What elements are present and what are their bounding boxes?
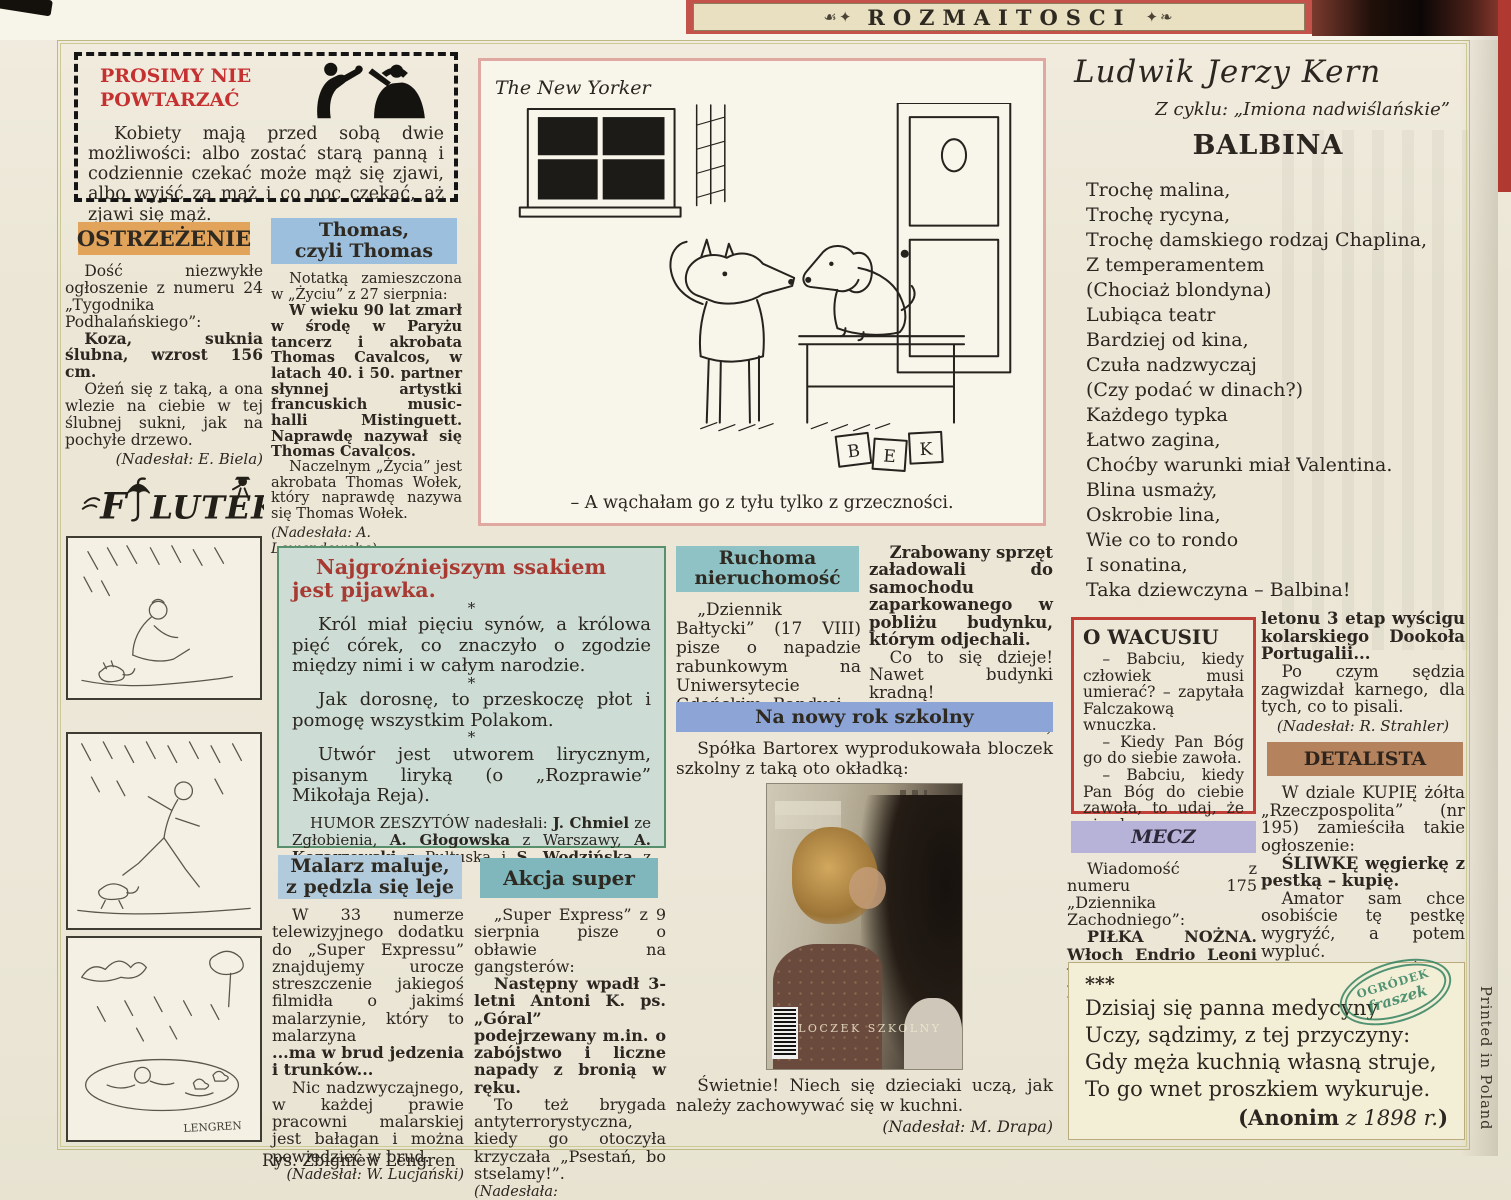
humor-quote: Utwór jest utworem lirycznym, pisanym li… (292, 745, 651, 807)
poem-title: BALBINA (1070, 130, 1466, 161)
poem-body: Trochę malina, Trochę rycyna, Trochę dam… (1086, 178, 1466, 603)
section-header-thomas: Thomas, czyli Thomas (271, 218, 457, 264)
prosimy-title-line2: POWTARZAĆ (100, 89, 251, 113)
photo-kitchen-shelf (775, 801, 841, 815)
section-header-akcja: Akcja super (480, 858, 658, 898)
header-label: Akcja super (503, 867, 635, 889)
paragraph: – Babciu, kiedy człowiek musi umierać? –… (1083, 651, 1244, 734)
paragraph: ...ma w brud jedzenia i trunków... (272, 1044, 464, 1079)
szkolny-outro: Świetnie! Niech się dzieciaki uczą, jak … (676, 1077, 1053, 1137)
header-label-line2: nieruchomość (694, 569, 840, 589)
comic-panel-1-drawing (68, 538, 260, 698)
page-banner: ☙✦ ROZMAITOSCI ✦❧ (686, 0, 1312, 34)
scan-cover-edge (1498, 0, 1511, 192)
paragraph: letonu 3 etap wyścigu kolarskiego Dookoł… (1261, 610, 1465, 663)
page-title: ROZMAITOSCI (867, 5, 1131, 30)
comic-panel-2 (66, 732, 262, 930)
ostrzezenie-article-body: Dość niezwykłe ogłoszenie z numeru 24 „T… (65, 263, 263, 468)
cartoonist-signature: B E K (836, 432, 943, 471)
paragraph: To też brygada antyterrorystyczna, kiedy… (474, 1096, 666, 1182)
separator-star: * (292, 677, 651, 691)
svg-text:LUTEK: LUTEK (150, 488, 264, 526)
paragraph: Naczelnym „Życia” jest akrobata Thomas W… (271, 460, 462, 523)
paragraph: ŚLIWKĘ węgierkę z pestką – kupię. (1261, 855, 1465, 890)
barcode (772, 1007, 798, 1059)
paragraph: Co to się dzieje! Nawet budynki kradną! (869, 649, 1053, 701)
prosimy-title-line1: PROSIMY NIE (100, 65, 251, 89)
paragraph: Po czym sędzia zagwizdał karnego, dla ty… (1261, 663, 1465, 716)
scan-spine-shadow (1312, 0, 1511, 36)
comic-panel-3-drawing: LENGREN (68, 938, 260, 1140)
header-label: Na nowy rok szkolny (755, 707, 974, 728)
new-yorker-cartoon-box: The New Yorker (478, 58, 1046, 526)
contributor-credit: (Nadesłała: K.Tomaszewska) (474, 1184, 666, 1200)
contributor-credit: (Nadesłał: R. Strahler) (1261, 718, 1465, 736)
svg-text:F: F (99, 483, 129, 527)
paragraph: – Kiedy Pan Bóg go do siebie zawoła. (1083, 734, 1244, 767)
humor-title: Najgroźniejszym ssakiem jest pijawka. (292, 556, 651, 602)
header-label-line1: Ruchoma (719, 549, 816, 569)
prosimy-title: PROSIMY NIE POWTARZAĆ (100, 65, 251, 113)
separator-star: * (292, 602, 651, 616)
owacusiu-body: – Babciu, kiedy człowiek musi umierać? –… (1083, 651, 1244, 833)
paragraph: Spółka Bartorex wyprodukowała bloczek sz… (676, 740, 1053, 779)
prosimy-body: Kobiety mają przed sobą dwie możliwości:… (88, 124, 444, 225)
section-header-szkolny: Na nowy rok szkolny (676, 702, 1053, 732)
section-header-malarz: Malarz maluje, z pędzla się leje (278, 855, 462, 899)
humor-zeszytow-box: Najgroźniejszym ssakiem jest pijawka. * … (277, 546, 666, 848)
left-dog-drawing (670, 240, 794, 431)
paragraph: Notatką zamieszczona w „Życiu” z 27 sier… (271, 272, 462, 303)
dancing-couple-silhouette-icon (271, 58, 446, 122)
section-header-detalista: DETALISTA (1267, 742, 1463, 776)
svg-text:K: K (919, 439, 934, 460)
detalista-article-body: W dziale KUPIĘ żółta „Rzeczpospolita” (n… (1261, 784, 1465, 980)
paragraph: W 33 numerze telewizyjnego dodatku do „S… (272, 906, 464, 1044)
banner-panel: ☙✦ ROZMAITOSCI ✦❧ (693, 3, 1305, 31)
paragraph: Wiadomość z numeru 175 „Dziennika Zachod… (1067, 860, 1257, 928)
svg-text:LENGREN: LENGREN (183, 1119, 242, 1135)
newspaper-page: ☙✦ ROZMAITOSCI ✦❧ PROSIMY NIE POWTARZAĆ (0, 0, 1511, 1200)
paragraph: Ożeń się z taką, a ona wlezie na ciebie … (65, 381, 263, 449)
paragraph: Amator sam chce osobiście tę pestkę wygr… (1261, 890, 1465, 961)
comic-panel-1 (66, 536, 262, 700)
flourish-icon: ✦❧ (1145, 8, 1174, 26)
paragraph: Koza, suknia ślubna, wzrost 156 cm. (65, 331, 263, 382)
school-notepad-cover-photo: BLOCZEK SZKOLNY (766, 783, 963, 1070)
paragraph: W wieku 90 lat zmarł w środę w Paryżu ta… (271, 303, 462, 460)
header-label-line1: Malarz maluje, (290, 856, 449, 877)
header-label: MECZ (1131, 827, 1196, 848)
bench-drawing (799, 336, 964, 422)
artist-credit: Rys. Zbigniew Lengren (262, 1151, 456, 1170)
filutek-logo: F LUTEK (74, 470, 264, 532)
comic-panel-2-drawing (68, 734, 260, 928)
section-header-mecz: MECZ (1071, 821, 1256, 853)
thomas-article-body: Notatką zamieszczona w „Życiu” z 27 sier… (271, 272, 462, 558)
svg-text:B: B (846, 441, 861, 462)
contributor-credit: (Nadesłał: M. Drapa) (676, 1118, 1053, 1137)
malarz-article-body: W 33 numerze telewizyjnego dodatku do „S… (272, 906, 464, 1184)
poem-series-label: Z cyklu: „Imiona nadwiślańskie” (1070, 99, 1450, 120)
section-header-ostrzezenie: OSTRZEŻENIE (78, 222, 250, 255)
anonim-credit: (Anonim z 1898 r.) (1085, 1105, 1448, 1130)
szkolny-intro: Spółka Bartorex wyprodukowała bloczek sz… (676, 740, 1053, 779)
paragraph: „Dziennik Bałtycki” (17 VIII) pisze o na… (676, 601, 861, 715)
paragraph: Świetnie! Niech się dzieciaki uczą, jak … (676, 1077, 1053, 1116)
akcja-article-body: „Super Express” z 9 sierpnia pisze o obł… (474, 906, 666, 1200)
photo-woman-face (849, 867, 886, 910)
ruchoma-article-left: „Dziennik Bałtycki” (17 VIII) pisze o na… (676, 601, 861, 715)
anonim-poem-box: *** Dzisiaj się panna medycyny Uczy, sąd… (1068, 962, 1465, 1140)
humor-quote: Jak dorosnę, to przeskoczę płot i pomogę… (292, 690, 651, 731)
prosimy-box: PROSIMY NIE POWTARZAĆ Kobiety mają przed… (74, 52, 458, 202)
flourish-icon: ☙✦ (823, 8, 853, 26)
paragraph: W dziale KUPIĘ żółta „Rzeczpospolita” (n… (1261, 784, 1465, 855)
paragraph: „Super Express” z 9 sierpnia pisze o obł… (474, 906, 666, 975)
contributor-credit: (Nadesłał: E. Biela) (65, 451, 263, 469)
header-label-line2: czyli Thomas (295, 241, 433, 262)
svg-text:E: E (883, 446, 897, 467)
cartoon-source-label: The New Yorker (495, 77, 651, 99)
peleton-article-body: letonu 3 etap wyścigu kolarskiego Dookoł… (1261, 610, 1465, 736)
comic-panel-3: LENGREN (66, 936, 262, 1142)
paragraph: Dość niezwykłe ogłoszenie z numeru 24 „T… (65, 263, 263, 331)
poem-author: Ludwik Jerzy Kern (1074, 54, 1466, 90)
separator-star: * (292, 731, 651, 745)
paragraph: Zrabowany sprzęt załadowali do samochodu… (869, 544, 1053, 649)
two-dogs-cartoon-drawing: B E K (499, 103, 1023, 495)
cartoon-caption: – A wąchałam go z tyłu tylko z grzecznoś… (481, 493, 1043, 513)
humor-quote: Król miał pięciu synów, a królowa pięć c… (292, 615, 651, 677)
paragraph: Następny wpadł 3-letni Antoni K. ps. „Gó… (474, 975, 666, 1096)
header-label-line1: Thomas, (319, 220, 409, 241)
header-label: OSTRZEŻENIE (77, 227, 251, 250)
owacusiu-box: O WACUSIU – Babciu, kiedy człowiek musi … (1071, 617, 1256, 814)
owacusiu-title: O WACUSIU (1083, 625, 1244, 649)
printed-in-poland-label: Printed in Poland (1477, 986, 1493, 1130)
section-header-ruchoma: Ruchoma nieruchomość (676, 546, 859, 592)
header-label-line2: z pędzla się leje (286, 877, 454, 898)
header-label: DETALISTA (1304, 749, 1427, 770)
